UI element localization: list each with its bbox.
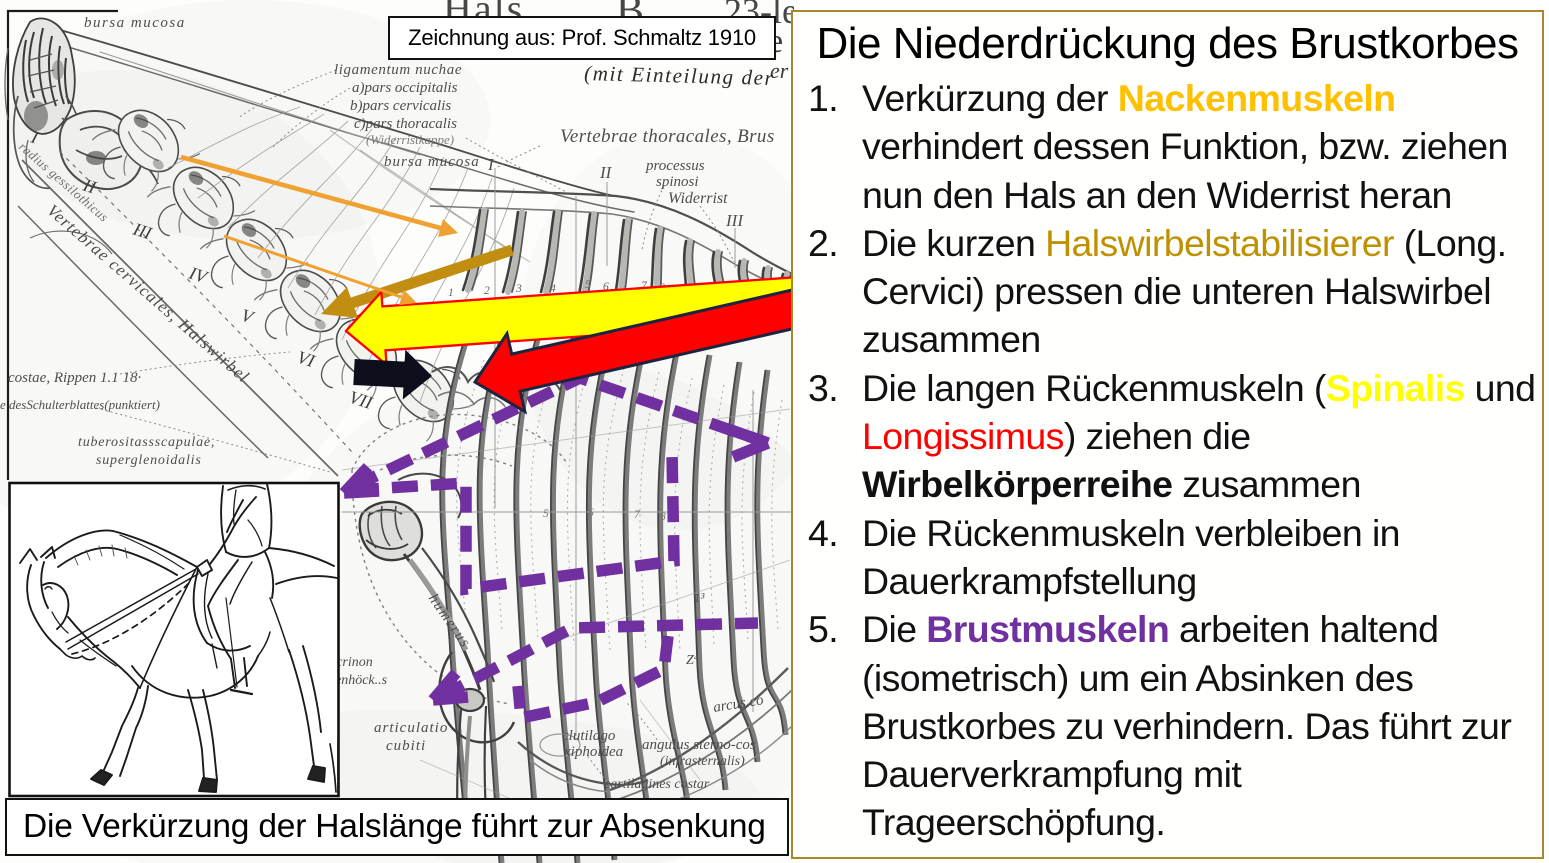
svg-text:2: 2 <box>484 285 490 297</box>
svg-text:bursa mucosa: bursa mucosa <box>384 154 480 170</box>
svg-text:cartilagines costar: cartilagines costar <box>604 777 710 792</box>
svg-text:(Widerristkappe): (Widerristkappe) <box>366 132 454 147</box>
svg-text:8: 8 <box>660 511 666 523</box>
svg-text:angulus sterno-cos: angulus sterno-cos <box>642 737 756 753</box>
svg-text:1: 1 <box>448 287 454 299</box>
svg-text:3: 3 <box>515 283 522 295</box>
svg-text:b)pars cervicalis: b)pars cervicalis <box>350 98 451 114</box>
svg-text:cubiti: cubiti <box>386 738 426 754</box>
svg-text:articulatio: articulatio <box>374 720 448 736</box>
svg-text:tuberositassscapulae,: tuberositassscapulae, <box>78 435 215 450</box>
svg-text:c)pars thoracalis: c)pars thoracalis <box>354 116 457 132</box>
svg-text:a)pars occipitalis: a)pars occipitalis <box>352 80 458 96</box>
svg-text:superglenoidalis: superglenoidalis <box>96 453 202 468</box>
svg-text:Z⁴: Z⁴ <box>686 653 699 668</box>
svg-text:5: 5 <box>543 508 549 520</box>
svg-text:xiphoidea: xiphoidea <box>563 744 623 760</box>
svg-text:(infrasternalis): (infrasternalis) <box>660 754 745 769</box>
svg-text:III: III <box>725 211 744 230</box>
svg-text:1³: 1³ <box>694 590 706 605</box>
svg-text:Vertebrae thoracales, Brus: Vertebrae thoracales, Brus <box>560 126 775 147</box>
svg-text:II: II <box>599 163 613 182</box>
svg-text:Widerrist: Widerrist <box>668 190 728 207</box>
svg-text:(mit Einteilung der: (mit Einteilung der <box>584 61 775 90</box>
svg-text:clutilago: clutilago <box>562 728 616 744</box>
svg-text:spinosi: spinosi <box>656 174 699 190</box>
svg-text:6: 6 <box>588 507 594 519</box>
svg-text:bursa mucosa: bursa mucosa <box>84 15 186 31</box>
svg-text:costae, Rippen 1.1 18·: costae, Rippen 1.1 18· <box>8 370 141 386</box>
svg-text:ligamentum nuchae: ligamentum nuchae <box>334 62 462 78</box>
svg-text:processus: processus <box>645 158 705 174</box>
svg-text:5: 5 <box>585 279 591 291</box>
svg-text:e desSchulterblattes(punktiert: e desSchulterblattes(punktiert) <box>0 397 160 412</box>
